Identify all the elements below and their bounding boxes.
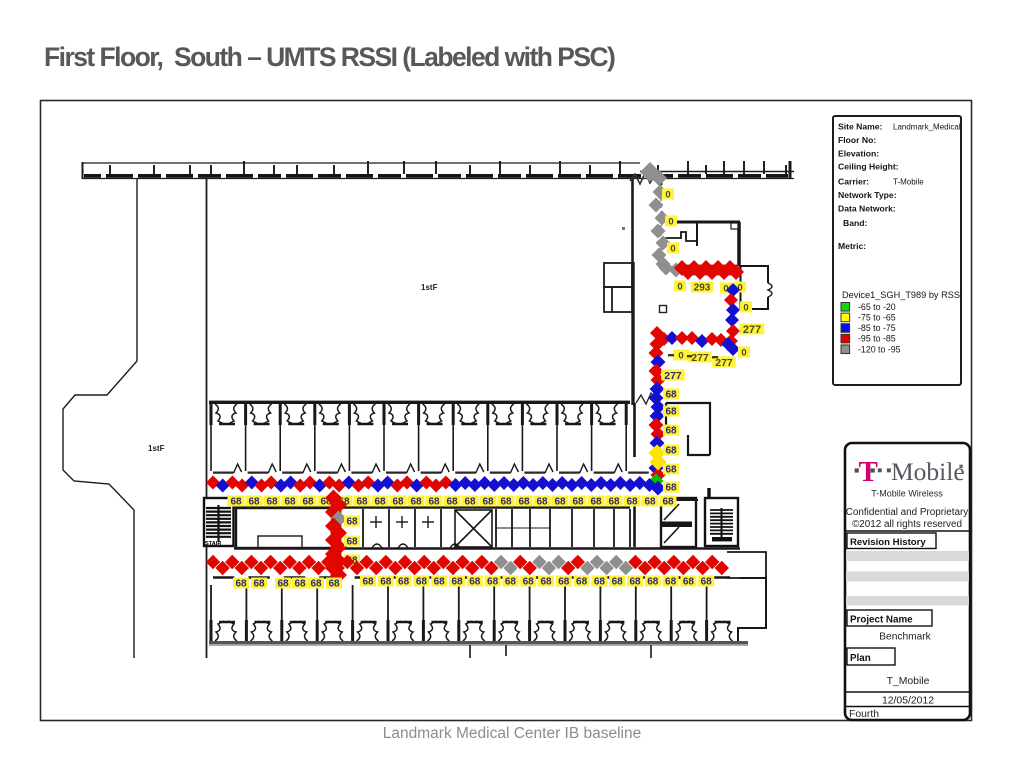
svg-text:68: 68 xyxy=(518,497,530,508)
svg-text:68: 68 xyxy=(284,497,296,508)
svg-text:Metric:: Metric: xyxy=(838,241,866,251)
svg-text:68: 68 xyxy=(523,577,535,588)
svg-text:0: 0 xyxy=(741,347,746,358)
svg-text:68: 68 xyxy=(629,577,641,588)
svg-text:68: 68 xyxy=(594,577,606,588)
svg-text:68: 68 xyxy=(644,497,656,508)
svg-text:Band:: Band: xyxy=(843,218,867,228)
svg-text:68: 68 xyxy=(416,577,428,588)
svg-text:©2012 all rights reserved: ©2012 all rights reserved xyxy=(852,519,962,530)
svg-text:68: 68 xyxy=(482,497,494,508)
svg-text:Confidential and Proprietary: Confidential and Proprietary xyxy=(846,507,968,518)
svg-text:0: 0 xyxy=(743,302,748,313)
svg-text:68: 68 xyxy=(701,577,713,588)
svg-text:Plan: Plan xyxy=(850,653,871,664)
svg-text:68: 68 xyxy=(362,577,374,588)
svg-text:68: 68 xyxy=(302,497,314,508)
svg-text:Fourth: Fourth xyxy=(849,709,879,720)
svg-text:0: 0 xyxy=(668,216,673,227)
svg-text:68: 68 xyxy=(500,497,512,508)
svg-text:68: 68 xyxy=(328,579,340,590)
svg-text:68: 68 xyxy=(665,426,677,437)
svg-text:68: 68 xyxy=(662,497,674,508)
svg-text:68: 68 xyxy=(346,537,358,548)
svg-text:68: 68 xyxy=(558,577,570,588)
svg-text:Device1_SGH_T989 by RSSI: Device1_SGH_T989 by RSSI xyxy=(842,290,963,300)
svg-text:68: 68 xyxy=(356,497,368,508)
svg-text:Network Type:: Network Type: xyxy=(838,190,897,200)
svg-text:0: 0 xyxy=(670,243,675,254)
svg-text:68: 68 xyxy=(428,497,440,508)
svg-text:68: 68 xyxy=(665,390,677,401)
svg-text:68: 68 xyxy=(665,483,677,494)
svg-text:277: 277 xyxy=(664,370,682,382)
svg-text:277: 277 xyxy=(715,357,733,369)
svg-text:68: 68 xyxy=(277,579,289,590)
svg-text:0: 0 xyxy=(665,189,670,200)
svg-text:Project Name: Project Name xyxy=(850,615,913,626)
svg-text:68: 68 xyxy=(410,497,422,508)
svg-text:-85 to -75: -85 to -75 xyxy=(858,323,896,333)
svg-text:293: 293 xyxy=(694,283,711,294)
svg-text:68: 68 xyxy=(683,577,695,588)
svg-text:68: 68 xyxy=(235,579,247,590)
svg-text:Ceiling Height:: Ceiling Height: xyxy=(838,162,899,172)
svg-text:68: 68 xyxy=(230,497,242,508)
svg-text:68: 68 xyxy=(536,497,548,508)
svg-text:Data Network:: Data Network: xyxy=(838,204,896,214)
svg-text:68: 68 xyxy=(612,577,624,588)
svg-text:Landmark Medical Center IB bas: Landmark Medical Center IB baseline xyxy=(383,725,641,742)
svg-text:-120 to -95: -120 to -95 xyxy=(858,344,901,354)
svg-text:277: 277 xyxy=(743,324,761,336)
svg-text:68: 68 xyxy=(380,577,392,588)
svg-text:T: T xyxy=(859,456,878,488)
svg-text:68: 68 xyxy=(665,446,677,457)
svg-text:68: 68 xyxy=(310,579,322,590)
svg-text:1stF: 1stF xyxy=(421,283,438,292)
svg-text:68: 68 xyxy=(398,577,410,588)
svg-text:68: 68 xyxy=(590,497,602,508)
svg-text:68: 68 xyxy=(572,497,584,508)
svg-text:68: 68 xyxy=(626,497,638,508)
svg-text:68: 68 xyxy=(665,577,677,588)
svg-text:68: 68 xyxy=(464,497,476,508)
svg-text:68: 68 xyxy=(451,577,463,588)
svg-text:68: 68 xyxy=(346,517,358,528)
svg-text:1stF: 1stF xyxy=(148,444,165,453)
svg-text:277: 277 xyxy=(691,352,709,364)
svg-text:68: 68 xyxy=(294,579,306,590)
svg-text:Landmark_Medical: Landmark_Medical xyxy=(893,123,961,132)
svg-text:68: 68 xyxy=(647,577,659,588)
svg-text:Benchmark: Benchmark xyxy=(879,632,931,643)
svg-text:68: 68 xyxy=(374,497,386,508)
svg-text:0: 0 xyxy=(677,281,682,292)
svg-text:-65 to -20: -65 to -20 xyxy=(858,302,896,312)
svg-text:68: 68 xyxy=(446,497,458,508)
svg-text:STAIR: STAIR xyxy=(205,541,221,547)
svg-text:T_Mobile: T_Mobile xyxy=(887,676,930,687)
svg-text:0: 0 xyxy=(678,350,683,361)
svg-text:68: 68 xyxy=(665,407,677,418)
svg-text:68: 68 xyxy=(266,497,278,508)
svg-text:68: 68 xyxy=(248,497,260,508)
svg-text:68: 68 xyxy=(540,577,552,588)
svg-text:68: 68 xyxy=(554,497,566,508)
svg-text:-95 to -85: -95 to -85 xyxy=(858,334,896,344)
svg-text:68: 68 xyxy=(505,577,517,588)
svg-text:Floor No:: Floor No: xyxy=(838,135,876,145)
svg-text:68: 68 xyxy=(469,577,481,588)
svg-text:Revision History: Revision History xyxy=(850,537,926,548)
svg-text:68: 68 xyxy=(434,577,446,588)
svg-text:Mobile: Mobile xyxy=(891,457,965,486)
svg-text:68: 68 xyxy=(487,577,499,588)
svg-text:-75 to -65: -75 to -65 xyxy=(858,313,896,323)
svg-text:Elevation:: Elevation: xyxy=(838,148,879,158)
svg-text:68: 68 xyxy=(665,465,677,476)
svg-text:68: 68 xyxy=(253,579,265,590)
svg-text:68: 68 xyxy=(576,577,588,588)
svg-text:Site Name:: Site Name: xyxy=(838,122,883,132)
svg-text:68: 68 xyxy=(392,497,404,508)
svg-text:T-Mobile Wireless: T-Mobile Wireless xyxy=(871,489,943,499)
svg-text:Carrier:: Carrier: xyxy=(838,177,869,187)
svg-text:T-Mobile: T-Mobile xyxy=(893,178,924,187)
svg-text:12/05/2012: 12/05/2012 xyxy=(882,696,934,707)
svg-text:First Floor, South – UMTS RSS: First Floor, South – UMTS RSSI (Labeled … xyxy=(44,42,615,72)
svg-text:68: 68 xyxy=(608,497,620,508)
